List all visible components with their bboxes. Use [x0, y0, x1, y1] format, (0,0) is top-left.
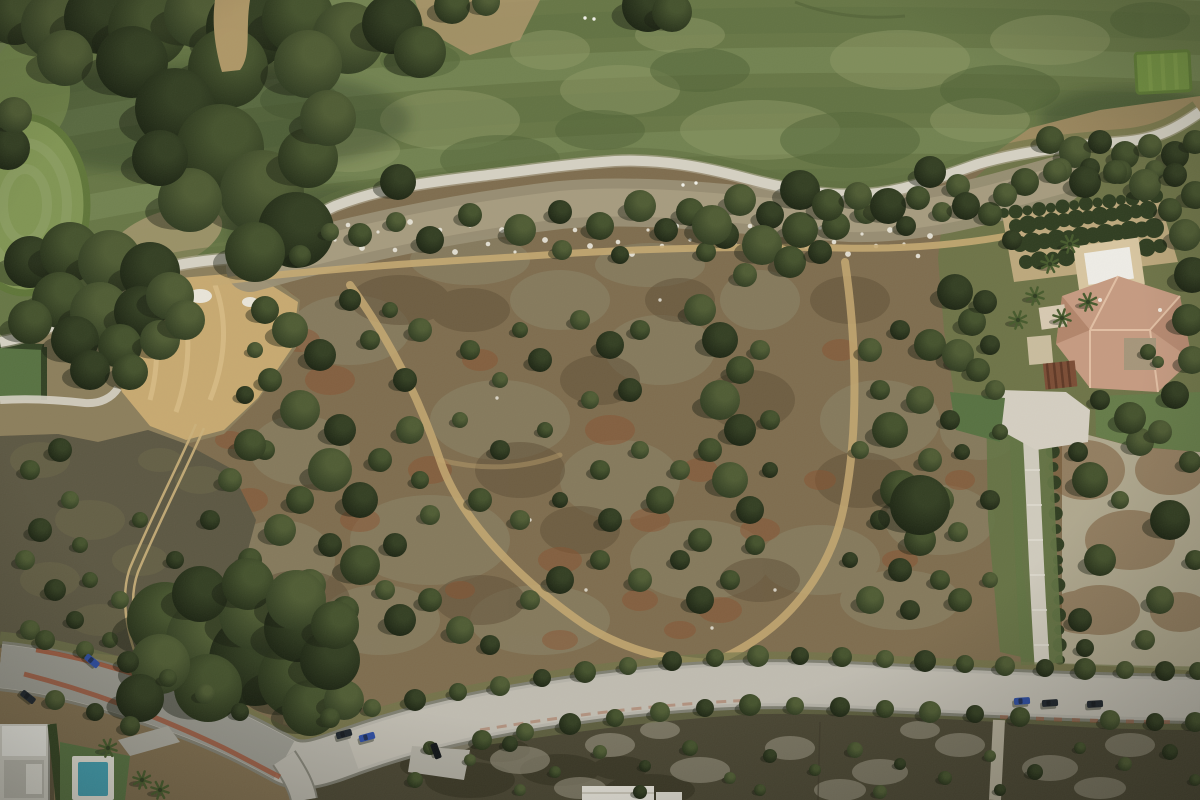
grain-overlay	[0, 0, 1200, 800]
aerial-photo-canvas: Aerial drone photograph of a vacant land…	[0, 0, 1200, 800]
aerial-photograph: Aerial drone photograph of a vacant land…	[0, 0, 1200, 800]
